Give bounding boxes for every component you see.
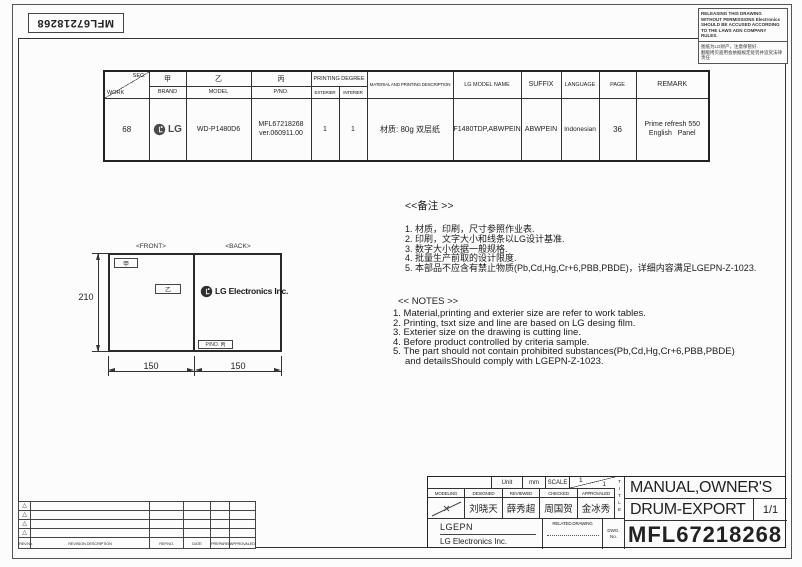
- corner-work-label: WORK: [107, 90, 124, 96]
- value-work: 68: [104, 98, 149, 161]
- dim-arrow-left-2: [195, 368, 202, 372]
- header-brand-cn: 甲: [149, 71, 186, 86]
- dwg-label-line1: DWG.: [607, 529, 619, 534]
- value-page: 36: [599, 98, 636, 161]
- back-pno-tag: P/NO. 丙: [198, 340, 233, 349]
- revision-cell: [184, 520, 211, 529]
- dim-ext-bottom: [92, 351, 108, 352]
- back-panel-label: <BACK>: [208, 243, 268, 250]
- revision-header-rep-no: REP.NO.: [150, 538, 184, 549]
- title-vert-letter: I: [619, 487, 620, 492]
- title-vert-letter: T: [618, 480, 621, 485]
- revision-header-approvaled: APPROVALED: [230, 538, 256, 549]
- signature-modeling: [428, 498, 465, 519]
- title-vert-letter: L: [618, 501, 621, 506]
- revision-header-prepared: PREPARED: [211, 538, 230, 549]
- header-material: MATERIAL AND PRINTING DESCRIPTION: [367, 71, 453, 98]
- title-vert-letter: T: [618, 494, 621, 499]
- revision-table: △ △ △ △ REV.No. REVISION DESCRIPTION REP…: [18, 501, 256, 549]
- dim-ext-right: [281, 356, 282, 376]
- revision-cell: [230, 529, 256, 538]
- title-vertical-strip: T I T L E: [615, 477, 625, 519]
- role-modeling: MODELING: [428, 489, 465, 498]
- drawing-sheet: { "sheet": { "barcode_text": "MFL6721826…: [0, 0, 802, 567]
- confidentiality-warning-box: RELEASING THIS DRAWING WITHOUT PERMISSIO…: [698, 8, 788, 64]
- value-lg-model-name: F1480TDP,ABWPEIN: [453, 98, 521, 161]
- related-drawing-cell: RELATED DRAWING: [543, 519, 603, 549]
- related-drawing-dotted-line: [547, 535, 599, 536]
- dim-width-back-line: [194, 371, 281, 372]
- related-drawing-label: RELATED DRAWING: [552, 521, 592, 526]
- company-short: LGEPN: [440, 522, 473, 532]
- notes-english-title: << NOTES >>: [398, 296, 793, 307]
- header-lg-model-name: LG MODEL NAME: [453, 71, 521, 98]
- drawing-number: MFL67218268: [625, 521, 787, 549]
- dim-arrow-right-1: [187, 368, 194, 372]
- value-interier: 1: [339, 98, 367, 161]
- title-block-blank-cell: [428, 477, 492, 489]
- value-remark-line1: Prime refresh 550: [637, 120, 709, 129]
- notes-chinese-title: <<备注 >>: [405, 198, 800, 213]
- header-pno-cn: 丙: [251, 71, 311, 86]
- dim-arrow-left-1: [108, 368, 115, 372]
- dim-ext-top: [92, 253, 108, 254]
- header-language: LANGUAGE: [561, 71, 599, 98]
- company-divider-line: [440, 534, 536, 535]
- title-vert-letter: E: [618, 508, 621, 513]
- warning-en-line: SHOULD BE ACCUSED ACCORDING: [701, 22, 785, 28]
- scale-numerator: 1: [579, 477, 583, 484]
- dim-arrow-up: [96, 253, 100, 260]
- dwg-label-line2: No.: [610, 535, 617, 540]
- name-reviewed: 薛秀超: [503, 498, 540, 519]
- role-designed: DESIGNED: [465, 489, 503, 498]
- value-pno-line2: ver.060911.00: [252, 129, 311, 138]
- revision-cell: [211, 502, 230, 511]
- dim-ext-left: [108, 356, 109, 376]
- corner-sec-label: SEC.: [133, 73, 146, 79]
- corner-sec-work-cell: SEC. WORK: [104, 71, 149, 98]
- header-model-cn: 乙: [186, 71, 251, 86]
- panel-fold-line: [193, 253, 195, 352]
- revision-cell: [230, 511, 256, 520]
- name-approvaled: 金冰秀: [578, 498, 615, 519]
- lg-logo-wordmark: LG: [168, 124, 182, 135]
- dim-arrow-down: [96, 345, 100, 352]
- revision-header-rev-no: REV.No.: [19, 538, 31, 549]
- header-page: PAGE: [599, 71, 636, 98]
- warning-text-chinese: 图纸为LG财产，注意保管好. 翻版拷贝盗用会依据规定处罚并追究法律责任: [699, 42, 787, 63]
- revision-cell: [211, 511, 230, 520]
- notes-chinese-item: 5. 本部品不应含有禁止物质(Pb,Cd,Hg,Cr+6,PBB,PBDE)，详…: [405, 264, 800, 274]
- back-logo-text: LG Electronics Inc.: [215, 286, 288, 296]
- sheet-number: 1/1: [754, 499, 787, 521]
- revision-marker-icon: △: [19, 520, 31, 529]
- role-checked: CHECKED: [540, 489, 578, 498]
- revision-marker-icon: △: [19, 511, 31, 520]
- value-suffix: ABWPEIN: [521, 98, 561, 161]
- header-suffix: SUFFIX: [521, 71, 561, 98]
- value-model: WD-P1480D6: [186, 98, 251, 161]
- revision-marker-icon: △: [19, 502, 31, 511]
- dim-height-line: [98, 253, 99, 352]
- scale-denominator: 1: [602, 481, 606, 488]
- revision-cell: [211, 520, 230, 529]
- drawing-title-line1: MANUAL,OWNER'S: [625, 477, 787, 499]
- revision-cell: [31, 502, 150, 511]
- name-designed: 刘晓天: [465, 498, 503, 519]
- revision-cell: [150, 520, 184, 529]
- value-remark: Prime refresh 550 English Panel: [636, 98, 709, 161]
- notes-chinese: <<备注 >> 1. 材质，印刷，尺寸参照作业表. 2. 印刷，文字大小和线条以…: [405, 198, 800, 274]
- header-printing-degree: PRINTING DEGREE: [311, 71, 367, 86]
- notes-english: << NOTES >> 1. Material,printing and ext…: [393, 296, 793, 366]
- company-cell: LGEPN LG Electronics Inc.: [428, 519, 543, 549]
- role-reviewed: REVIEWED: [503, 489, 540, 498]
- revision-cell: [230, 502, 256, 511]
- header-model-en: MODEL: [186, 86, 251, 98]
- header-exterier: EXTERIER: [311, 86, 339, 98]
- unit-value: mm: [523, 477, 546, 489]
- dim-ext-mid: [194, 356, 195, 376]
- warning-cn-line: 翻版拷贝盗用会依据规定处罚并追究法律责任: [701, 50, 785, 61]
- lg-logo-icon: [200, 285, 213, 298]
- name-checked: 周国贺: [540, 498, 578, 519]
- header-brand-en: BRAND: [149, 86, 186, 98]
- unit-label: Unit: [492, 477, 523, 489]
- notes-english-item-continuation: and detailsShould comply with LGEPN-Z-10…: [405, 357, 793, 367]
- company-full: LG Electronics Inc.: [440, 537, 507, 546]
- revision-cell: [150, 511, 184, 520]
- dim-arrow-right-2: [274, 368, 281, 372]
- value-material: 材质: 80g 双层纸: [367, 98, 453, 161]
- revision-marker-icon: △: [19, 529, 31, 538]
- dim-width-front-value: 150: [132, 361, 170, 371]
- revision-cell: [230, 520, 256, 529]
- revision-header-date: DATE: [184, 538, 211, 549]
- value-brand: LG: [149, 98, 186, 161]
- dim-height-value: 210: [76, 292, 96, 302]
- value-exterier: 1: [311, 98, 339, 161]
- revision-cell: [31, 529, 150, 538]
- revision-cell: [184, 511, 211, 520]
- value-pno-line1: MFL67218268: [252, 120, 311, 129]
- header-remark: REMARK: [636, 71, 709, 98]
- front-tag-yi: 乙: [155, 284, 181, 294]
- revision-cell: [184, 502, 211, 511]
- scale-label: SCALE: [546, 477, 570, 489]
- revision-cell: [31, 520, 150, 529]
- dim-width-front-line: [108, 371, 194, 372]
- work-spec-table: SEC. WORK 甲 乙 丙 PRINTING DEGREE MATERIAL…: [103, 70, 710, 162]
- value-remark-line2: English Panel: [637, 129, 709, 138]
- revision-cell: [150, 529, 184, 538]
- header-interier: INTERIER: [339, 86, 367, 98]
- lg-logo-icon: [153, 123, 166, 136]
- scale-value: 1 1: [570, 477, 615, 489]
- dwg-no-label: DWG. No.: [603, 519, 625, 549]
- dim-width-back-value: 150: [219, 361, 257, 371]
- warning-en-line: RULES.: [701, 33, 785, 39]
- revision-cell: [150, 502, 184, 511]
- part-number-stamp-text: MFL67218268: [37, 17, 114, 29]
- revision-cell: [211, 529, 230, 538]
- revision-cell: [184, 529, 211, 538]
- signature-slash-icon: [430, 500, 463, 517]
- part-number-stamp-box: MFL67218268: [28, 13, 124, 33]
- front-tag-jia: 甲: [114, 258, 138, 268]
- revision-header-description: REVISION DESCRIPTION: [31, 538, 150, 549]
- drawing-title-line2: DRUM-EXPORT: [625, 499, 754, 521]
- front-panel-label: <FRONT>: [121, 243, 181, 250]
- back-panel-logo: LG Electronics Inc.: [200, 283, 280, 299]
- title-block: Unit mm SCALE 1 1 MODELING DESIGNED REVI…: [427, 476, 786, 548]
- header-pno-en: P/NO.: [251, 86, 311, 98]
- warning-text-english: RELEASING THIS DRAWING WITHOUT PERMISSIO…: [699, 9, 787, 42]
- revision-cell: [31, 511, 150, 520]
- role-approvaled: APPROVALED: [578, 489, 615, 498]
- value-language: Indonesian: [561, 98, 599, 161]
- value-pno: MFL67218268 ver.060911.00: [251, 98, 311, 161]
